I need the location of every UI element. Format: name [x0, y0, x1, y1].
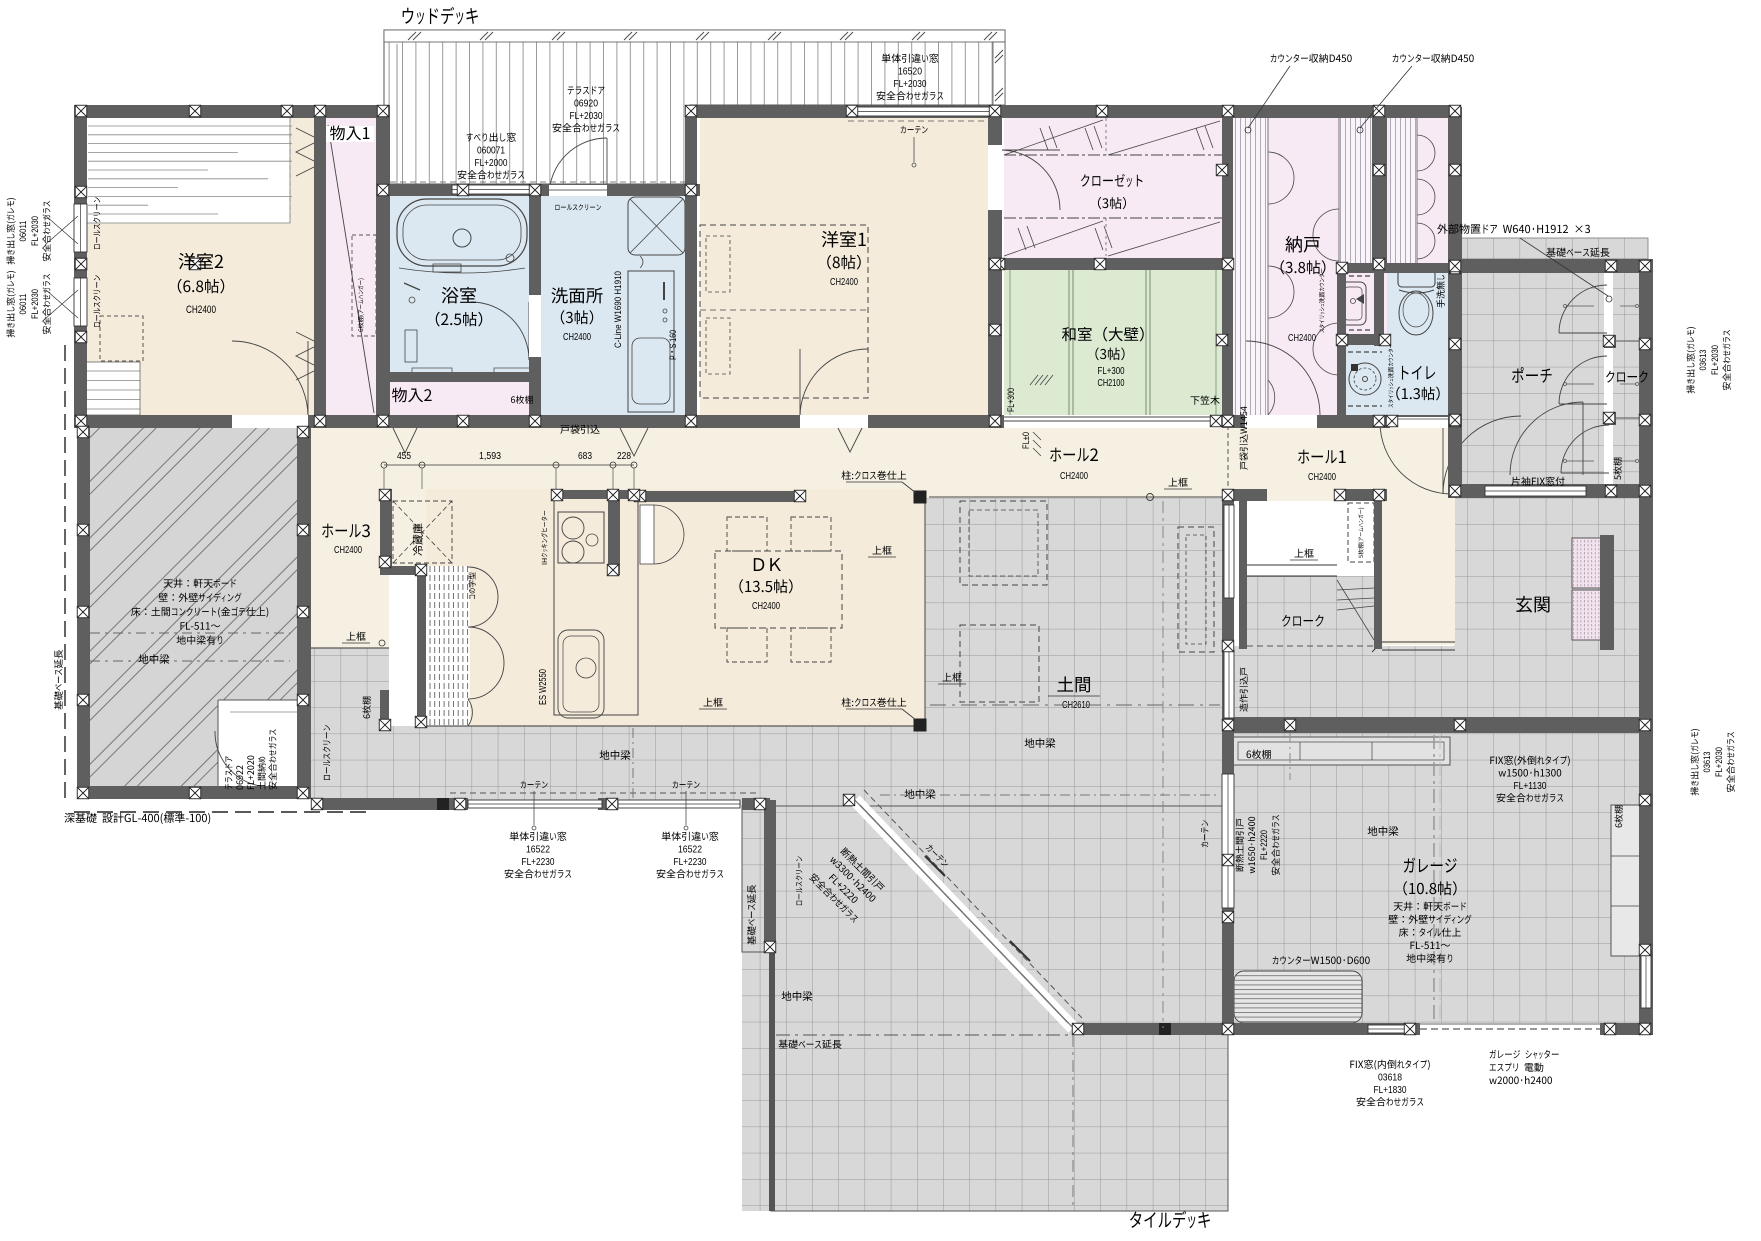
svg-text:CH2400: CH2400 [1060, 470, 1088, 482]
svg-text:FL+2030: FL+2030 [1710, 345, 1721, 375]
svg-text:03613: 03613 [1702, 752, 1713, 773]
svg-text:16520: 16520 [898, 66, 922, 78]
svg-text:FL+2230: FL+2230 [674, 856, 707, 868]
svg-text:16522: 16522 [526, 844, 550, 856]
svg-text:FL+2220: FL+2220 [1259, 830, 1270, 860]
svg-text:CH2400: CH2400 [186, 304, 216, 316]
svg-text:CH2400: CH2400 [1288, 332, 1316, 344]
svg-text:FL±0: FL±0 [1021, 432, 1032, 449]
svg-text:03618: 03618 [1378, 1072, 1402, 1084]
svg-text:060071: 060071 [477, 145, 505, 157]
svg-text:ES W2550: ES W2550 [538, 669, 549, 705]
svg-text:CH2400: CH2400 [752, 600, 780, 612]
svg-text:FL+1830: FL+1830 [1374, 1084, 1407, 1096]
svg-text:1,593: 1,593 [479, 451, 501, 462]
svg-text:CH2400: CH2400 [830, 276, 858, 288]
svg-text:CH2400: CH2400 [334, 544, 362, 556]
svg-text:FL+1130: FL+1130 [1514, 780, 1547, 792]
svg-text:06011: 06011 [18, 221, 29, 242]
svg-text:FL+2030: FL+2030 [30, 216, 41, 246]
svg-text:CH2400: CH2400 [1308, 471, 1336, 483]
svg-text:CH2100: CH2100 [1098, 378, 1125, 389]
svg-text:FL+2000: FL+2000 [475, 157, 508, 169]
svg-text:16522: 16522 [678, 844, 702, 856]
svg-text:FL+2030: FL+2030 [894, 78, 927, 90]
svg-text:228: 228 [617, 451, 631, 462]
svg-text:CH2400: CH2400 [563, 331, 591, 343]
svg-text:C-Line W1690 H1910: C-Line W1690 H1910 [613, 271, 624, 348]
svg-text:455: 455 [397, 451, 411, 462]
svg-text:03613: 03613 [1698, 350, 1709, 371]
svg-text:FL+2030: FL+2030 [30, 289, 41, 319]
svg-text:FL+2030: FL+2030 [1714, 747, 1725, 777]
svg-text:FL+300: FL+300 [1098, 366, 1125, 377]
svg-text:06011: 06011 [18, 294, 29, 315]
svg-text:06920: 06920 [574, 98, 598, 110]
svg-text:FL+2030: FL+2030 [570, 110, 603, 122]
svg-text:683: 683 [578, 451, 592, 462]
svg-text:FL+300: FL+300 [1006, 388, 1016, 412]
svg-text:FL+2230: FL+2230 [522, 856, 555, 868]
svg-text:P・S 160: P・S 160 [668, 330, 679, 360]
